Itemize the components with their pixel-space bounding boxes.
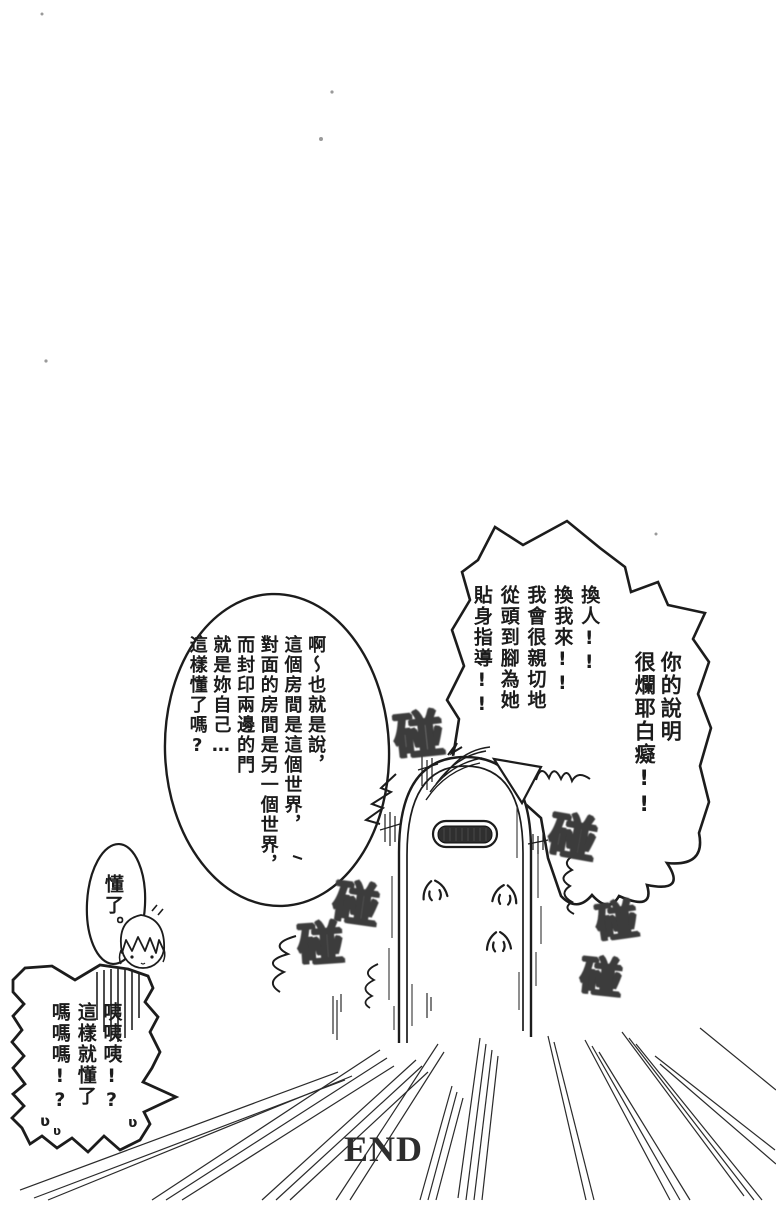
speed-lines (20, 1028, 776, 1200)
shock-bubble-text: 咦咦咦!? 這樣就懂了 嗎嗎嗎!? (44, 1002, 126, 1113)
angry-bubble-text-left: 換人!! 換我來!! 我會很親切地 從頭到腳為她 貼身指導!! (465, 585, 604, 717)
bubble-column: 這個房間是這個世界， (281, 635, 302, 875)
sfx-bang: 碰 (295, 906, 345, 975)
bubble-column: 而封印兩邊的門 (233, 635, 254, 875)
bubble-column: 我會很親切地 (524, 585, 546, 717)
wedge-squiggle (536, 771, 590, 781)
bubble-column: 你的說明 (658, 651, 682, 818)
sfx-bang: 碰 (543, 794, 602, 871)
bubble-column: 咦咦咦!? (100, 1002, 122, 1113)
door-vibration-lines (389, 806, 541, 1030)
angry-bubble-text-right: 你的說明 很爛耶白癡!! (630, 651, 684, 818)
bubble-column: 換我來!! (551, 585, 573, 717)
shock-tick (448, 743, 462, 755)
sfx-bang: 碰 (577, 942, 625, 1007)
tremble-mark: ʋ (40, 1112, 50, 1130)
chibi-character (120, 905, 165, 968)
door-handle (433, 821, 497, 847)
bubble-column: 從頭到腳為她 (497, 585, 519, 717)
bubble-column: 對面的房間是另一個世界， (257, 635, 278, 875)
bubble-column: 啊〜也就是說， (304, 635, 325, 875)
bubble-column: 貼身指導!! (470, 585, 492, 717)
sfx-bang: 碰 (389, 694, 446, 771)
reply-bubble-text: 懂了。 (101, 874, 123, 937)
bubble-wedge (494, 759, 541, 803)
vertical-dashes (333, 993, 431, 1040)
hash-marks (380, 756, 548, 854)
bubble-column: 嗎嗎嗎!? (48, 1002, 70, 1113)
paper-specks (41, 13, 658, 536)
tremble-mark: ʋ (53, 1124, 61, 1138)
manga-page: 你的說明 很爛耶白癡!! 換人!! 換我來!! 我會很親切地 從頭到腳為她 貼身… (0, 0, 776, 1206)
motion-ticks (152, 905, 163, 915)
bubble-column: 很爛耶白癡!! (632, 651, 656, 818)
anger-marks (421, 879, 517, 952)
tremble-mark: ʋ (128, 1115, 137, 1131)
bubble-column: 這樣就懂了 (74, 1002, 96, 1113)
bubble-column: 這樣懂了嗎? (186, 635, 207, 875)
bubble-column: 換人!! (577, 585, 599, 717)
bubble-column: 就是妳自己… (210, 635, 231, 875)
sfx-bang: 碰 (591, 885, 641, 951)
explanation-bubble-text: 啊〜也就是說， 這個房間是這個世界， 對面的房間是另一個世界， 而封印兩邊的門 … (183, 635, 328, 875)
end-label: END (344, 1128, 423, 1170)
